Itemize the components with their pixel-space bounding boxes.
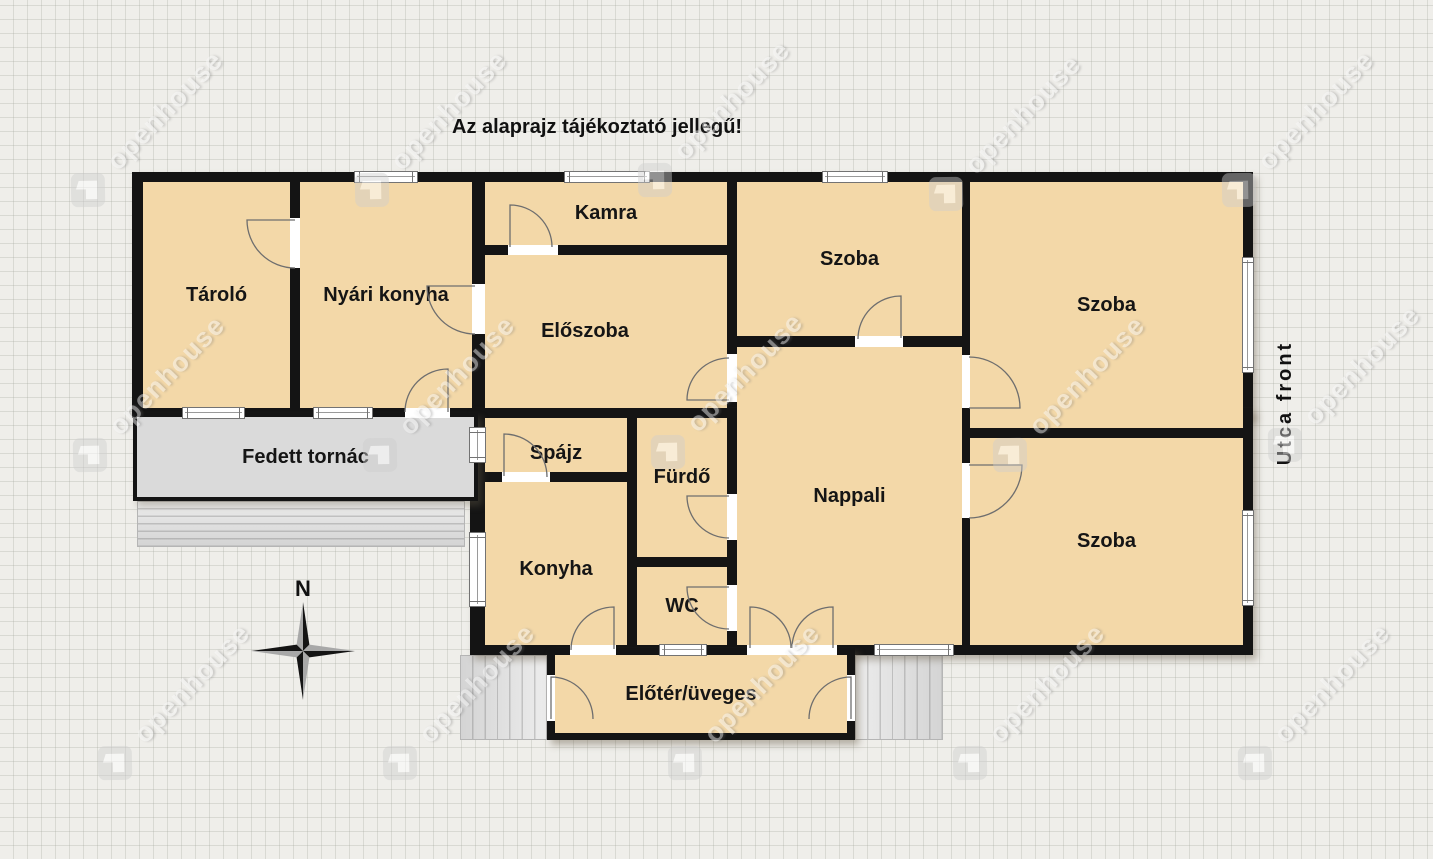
- door-opening: [747, 645, 837, 655]
- openhouse-logo-icon: [363, 726, 437, 800]
- door-opening: [290, 218, 300, 268]
- entry-steps-left: [460, 655, 547, 740]
- door-opening: [727, 585, 737, 631]
- room-furdo: Fürdő: [637, 418, 727, 557]
- room-spajz: Spájz: [485, 418, 627, 472]
- window: [564, 171, 650, 183]
- door-opening: [962, 463, 970, 518]
- room-kamra: Kamra: [485, 182, 727, 245]
- window: [313, 407, 373, 419]
- door-opening: [405, 408, 450, 418]
- window: [469, 532, 486, 607]
- window: [874, 644, 954, 656]
- room-label: Konyha: [519, 558, 592, 581]
- room-label: Előtér/üveges: [625, 683, 756, 706]
- street-front-label: Utca front: [1274, 323, 1298, 483]
- window: [354, 171, 418, 183]
- room-eloszoba: Előszoba: [485, 255, 727, 408]
- entry-steps-right: [855, 655, 943, 740]
- openhouse-logo-icon: [78, 726, 152, 800]
- door-opening: [962, 355, 970, 408]
- door-opening: [570, 645, 616, 655]
- room-fedett-tornac: Fedett tornác: [133, 413, 478, 501]
- floor-plan-canvas: Fedett tornác Tároló Nyári konyha Kamra …: [0, 0, 1433, 859]
- window: [182, 407, 245, 419]
- door-opening: [727, 354, 737, 402]
- room-label: Előszoba: [541, 320, 629, 343]
- room-label: Fürdő: [654, 466, 711, 489]
- room-label: Szoba: [1077, 530, 1136, 553]
- door-opening: [727, 494, 737, 540]
- room-label: Szoba: [1077, 294, 1136, 317]
- window: [822, 171, 888, 183]
- openhouse-logo-icon: [933, 726, 1007, 800]
- window: [469, 427, 486, 463]
- room-eloter: Előtér/üveges: [555, 655, 847, 733]
- door-opening: [502, 472, 550, 482]
- room-wc: WC: [637, 567, 727, 645]
- door-opening: [508, 245, 558, 255]
- room-label: Fedett tornác: [242, 446, 369, 469]
- room-label: Kamra: [575, 202, 637, 225]
- room-label: Szoba: [820, 248, 879, 271]
- openhouse-logo-icon: [53, 418, 127, 492]
- room-label: WC: [665, 595, 698, 618]
- room-tarolo: Tároló: [143, 182, 290, 408]
- plan-disclaimer-title: Az alaprajz tájékoztató jellegű!: [452, 116, 742, 139]
- door-opening: [547, 675, 555, 721]
- porch-steps: [137, 501, 465, 547]
- door-opening: [855, 336, 903, 347]
- window: [1242, 510, 1254, 606]
- compass-rose-icon: [243, 596, 363, 706]
- room-szoba-1: Szoba: [737, 182, 962, 336]
- room-label: Tároló: [186, 284, 247, 307]
- openhouse-logo-icon: [1218, 726, 1292, 800]
- room-konyha: Konyha: [485, 482, 627, 645]
- room-label: Nyári konyha: [323, 284, 449, 307]
- room-label: Nappali: [813, 485, 885, 508]
- window: [1242, 257, 1254, 373]
- openhouse-logo-icon: [51, 153, 125, 227]
- door-opening: [472, 284, 485, 334]
- door-opening: [847, 675, 855, 721]
- room-nyari-konyha: Nyári konyha: [300, 182, 472, 408]
- watermark: openhouse: [78, 610, 263, 799]
- window: [659, 644, 707, 656]
- room-nappali: Nappali: [737, 347, 962, 645]
- room-szoba-2: Szoba: [970, 182, 1243, 428]
- room-szoba-3: Szoba: [970, 438, 1243, 645]
- room-label: Spájz: [530, 442, 582, 465]
